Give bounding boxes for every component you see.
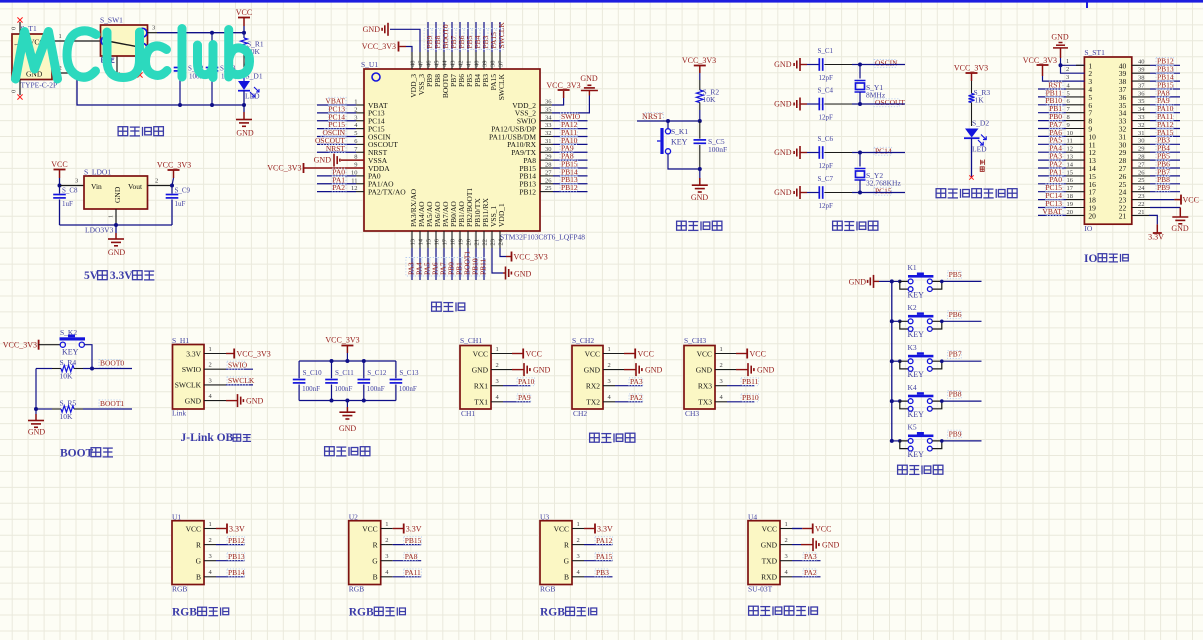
svg-text:STM32F103C8T6_LQFP48: STM32F103C8T6_LQFP48 [500, 233, 585, 242]
svg-text:PA12: PA12 [596, 536, 613, 545]
svg-text:10K: 10K [703, 95, 717, 104]
svg-text:2: 2 [1066, 66, 1069, 73]
svg-text:CH3: CH3 [685, 409, 699, 418]
svg-text:G: G [372, 557, 378, 566]
svg-text:GND: GND [645, 365, 663, 374]
svg-text:GND: GND [696, 365, 713, 374]
svg-text:1: 1 [109, 215, 115, 218]
svg-text:24: 24 [1138, 185, 1145, 192]
svg-text:RGB: RGB [540, 607, 565, 619]
svg-text:3: 3 [577, 553, 580, 560]
svg-text:B: B [564, 573, 569, 582]
svg-text:17: 17 [1067, 185, 1074, 192]
svg-text:K4: K4 [908, 383, 917, 392]
svg-text:19: 19 [1067, 201, 1074, 208]
svg-text:GND: GND [822, 540, 840, 549]
svg-text:39: 39 [1138, 67, 1145, 74]
svg-text:VCC_3V3: VCC_3V3 [362, 42, 396, 51]
svg-text:48: 48 [410, 61, 417, 68]
svg-text:3: 3 [1066, 74, 1069, 81]
svg-text:IO: IO [1084, 224, 1092, 233]
svg-text:VCC: VCC [51, 160, 67, 169]
svg-text:VCC: VCC [697, 349, 712, 358]
svg-text:VCC: VCC [638, 349, 654, 358]
svg-text:RGB: RGB [172, 585, 187, 594]
svg-text:VCC: VCC [554, 524, 569, 533]
svg-text:37: 37 [498, 60, 505, 67]
svg-text:PB14: PB14 [228, 568, 245, 577]
svg-text:29: 29 [1138, 146, 1145, 153]
svg-text:VCC_3V3: VCC_3V3 [546, 81, 580, 90]
svg-text:8: 8 [1067, 114, 1070, 121]
svg-text:PB11: PB11 [742, 377, 759, 386]
svg-text:PA2: PA2 [332, 183, 345, 192]
svg-text:PA9: PA9 [518, 393, 531, 402]
svg-text:TYPE-C-2P: TYPE-C-2P [21, 81, 58, 90]
svg-text:1K: 1K [975, 96, 985, 105]
svg-text:IO: IO [1084, 253, 1097, 265]
svg-text:S_CH2: S_CH2 [572, 336, 594, 345]
svg-text:23: 23 [1138, 193, 1145, 200]
svg-text:CH2: CH2 [573, 409, 587, 418]
svg-text:VCC_3V3: VCC_3V3 [267, 164, 301, 173]
svg-text:26: 26 [1138, 169, 1145, 176]
svg-text:PA11: PA11 [405, 568, 421, 577]
svg-text:GND: GND [472, 365, 489, 374]
svg-text:S_H1: S_H1 [172, 336, 189, 345]
svg-text:100nF: 100nF [302, 385, 320, 393]
svg-text:PA3: PA3 [804, 552, 817, 561]
svg-text:LED: LED [245, 92, 260, 101]
svg-text:PC15: PC15 [875, 187, 892, 196]
svg-text:16: 16 [1067, 177, 1074, 184]
svg-text:2: 2 [385, 537, 388, 544]
svg-text:21: 21 [1138, 209, 1145, 216]
svg-text:100nF: 100nF [335, 385, 353, 393]
svg-text:SWIO: SWIO [182, 365, 202, 374]
svg-text:3: 3 [720, 378, 723, 385]
svg-text:GND: GND [363, 25, 381, 34]
svg-text:VCC_3V3: VCC_3V3 [682, 56, 716, 65]
svg-text:VDD_1: VDD_1 [497, 203, 506, 227]
svg-text:S_C11: S_C11 [335, 369, 354, 377]
svg-text:3: 3 [785, 553, 788, 560]
svg-text:SWIO: SWIO [228, 360, 248, 369]
svg-text:OSCIN: OSCIN [875, 59, 898, 68]
svg-text:36: 36 [1138, 90, 1145, 97]
svg-text:8MHz: 8MHz [866, 91, 886, 100]
svg-text:1: 1 [385, 521, 388, 528]
svg-text:44: 44 [442, 60, 449, 67]
svg-text:K1: K1 [908, 263, 917, 272]
svg-text:PB5: PB5 [949, 270, 962, 279]
svg-text:KEY: KEY [908, 450, 925, 459]
svg-text:SWCLK: SWCLK [228, 376, 255, 385]
svg-text:1: 1 [209, 521, 212, 528]
svg-text:GND: GND [28, 428, 46, 437]
svg-text:21: 21 [1119, 211, 1127, 220]
svg-text:45: 45 [434, 61, 441, 68]
svg-text:R: R [196, 540, 201, 549]
svg-text:BOOT0: BOOT0 [100, 359, 124, 368]
svg-text:S_ST1: S_ST1 [1084, 48, 1105, 57]
svg-text:1: 1 [496, 346, 499, 353]
svg-text:G: G [196, 557, 202, 566]
svg-text:39: 39 [482, 61, 489, 68]
svg-text:28: 28 [1138, 154, 1145, 161]
svg-text:VCC: VCC [362, 524, 377, 533]
svg-text:32.768KHz: 32.768KHz [866, 179, 901, 188]
svg-text:1: 1 [59, 33, 62, 40]
svg-text:40: 40 [1138, 59, 1145, 66]
svg-text:S_LDO1: S_LDO1 [84, 168, 111, 177]
svg-text:33: 33 [1138, 114, 1145, 121]
svg-text:B: B [373, 573, 378, 582]
svg-text:42: 42 [458, 61, 465, 68]
svg-text:PB9: PB9 [1157, 183, 1170, 192]
svg-text:23: 23 [490, 239, 497, 246]
svg-text:S_K1: S_K1 [671, 127, 688, 136]
svg-text:VCC: VCC [1183, 196, 1199, 205]
svg-text:5: 5 [1067, 90, 1070, 97]
svg-text:S_C12: S_C12 [367, 369, 387, 377]
svg-text:S_C7: S_C7 [818, 175, 834, 183]
svg-text:3: 3 [209, 553, 212, 560]
svg-text:KEY: KEY [908, 290, 925, 299]
svg-text:37: 37 [1138, 82, 1145, 89]
svg-text:PB6: PB6 [949, 310, 962, 319]
svg-text:K3: K3 [908, 343, 917, 352]
svg-text:40: 40 [474, 61, 481, 68]
svg-text:GND: GND [774, 60, 792, 69]
svg-text:GND: GND [108, 248, 126, 257]
svg-text:2: 2 [608, 362, 611, 369]
svg-text:RXD: RXD [761, 573, 777, 582]
svg-text:14: 14 [418, 238, 425, 245]
svg-text:Vout: Vout [128, 182, 143, 191]
svg-text:PB12: PB12 [519, 187, 536, 196]
svg-text:S_U1: S_U1 [361, 60, 378, 69]
svg-text:43: 43 [450, 61, 457, 68]
svg-text:20: 20 [466, 239, 473, 246]
svg-text:38: 38 [490, 61, 497, 68]
svg-text:2: 2 [209, 362, 212, 369]
svg-text:GND: GND [774, 148, 792, 157]
svg-text:9: 9 [1067, 122, 1070, 129]
svg-text:11: 11 [1067, 138, 1073, 145]
svg-text:GND: GND [757, 365, 775, 374]
svg-text:5V: 5V [84, 270, 99, 282]
svg-text:10: 10 [1067, 130, 1074, 137]
svg-text:2: 2 [209, 537, 212, 544]
svg-text:BOOT: BOOT [60, 448, 94, 460]
svg-text:2: 2 [720, 362, 723, 369]
svg-text:17: 17 [442, 238, 449, 245]
svg-text:VCC: VCC [815, 524, 831, 533]
svg-text:G: G [564, 557, 570, 566]
svg-text:0: 0 [11, 27, 18, 30]
svg-text:16: 16 [434, 238, 441, 245]
svg-text:GND: GND [774, 188, 792, 197]
svg-text:100nF: 100nF [708, 145, 727, 154]
svg-text:RX3: RX3 [698, 382, 712, 391]
svg-text:SU-03T: SU-03T [748, 585, 773, 594]
svg-text:VCC_3V3: VCC_3V3 [954, 64, 988, 73]
svg-text:LDO3V3: LDO3V3 [85, 226, 114, 235]
svg-text:KEY: KEY [62, 348, 79, 357]
svg-text:GND: GND [246, 396, 264, 405]
svg-text:32: 32 [1138, 122, 1145, 129]
svg-text:41: 41 [466, 61, 473, 68]
svg-text:10K: 10K [60, 412, 74, 421]
svg-text:12pF: 12pF [819, 114, 834, 122]
svg-text:VCC_3V3: VCC_3V3 [237, 349, 271, 358]
svg-text:PA3: PA3 [630, 377, 643, 386]
svg-text:Vin: Vin [91, 182, 102, 191]
svg-text:K2: K2 [908, 303, 917, 312]
svg-text:TXD: TXD [762, 557, 778, 566]
svg-text:KEY: KEY [671, 138, 688, 147]
svg-text:NRST: NRST [642, 112, 663, 121]
svg-text:13: 13 [410, 239, 417, 246]
svg-text:15: 15 [426, 239, 433, 246]
svg-text:3.3V: 3.3V [597, 524, 613, 533]
svg-text:VCC: VCC [186, 524, 201, 533]
svg-text:PB11: PB11 [478, 258, 487, 275]
svg-text:S_D2: S_D2 [972, 119, 989, 128]
svg-text:3: 3 [152, 25, 155, 32]
svg-text:12pF: 12pF [819, 162, 834, 170]
svg-text:B: B [196, 573, 201, 582]
svg-text:SWCLK: SWCLK [497, 73, 506, 100]
svg-text:S_SW1: S_SW1 [100, 16, 123, 25]
svg-text:GND: GND [774, 100, 792, 109]
svg-text:LED: LED [972, 145, 987, 154]
svg-text:VCC: VCC [526, 349, 542, 358]
svg-text:22: 22 [1138, 201, 1145, 208]
svg-text:24: 24 [498, 238, 505, 245]
svg-text:J-Link OB: J-Link OB [181, 432, 234, 444]
svg-text:GND: GND [533, 365, 551, 374]
svg-text:VCC_3V3: VCC_3V3 [3, 341, 37, 350]
svg-text:12: 12 [1067, 146, 1074, 153]
svg-text:PA2/TX/AO: PA2/TX/AO [368, 187, 406, 196]
svg-text:S_C1: S_C1 [818, 47, 834, 55]
svg-text:31: 31 [1138, 130, 1145, 137]
svg-text:2: 2 [577, 537, 580, 544]
svg-text:PB7: PB7 [949, 350, 962, 359]
svg-text:K5: K5 [908, 423, 917, 432]
svg-text:GND: GND [185, 396, 202, 405]
svg-text:S_C9: S_C9 [175, 187, 191, 195]
svg-text:18: 18 [1067, 193, 1074, 200]
svg-text:1: 1 [720, 346, 723, 353]
svg-text:12pF: 12pF [819, 202, 834, 210]
svg-text:PA15: PA15 [596, 552, 613, 561]
svg-text:GND: GND [314, 156, 332, 165]
svg-text:PB12: PB12 [228, 536, 245, 545]
svg-text:GND: GND [339, 424, 357, 433]
svg-text:3.3V: 3.3V [229, 524, 245, 533]
svg-text:15: 15 [1067, 169, 1074, 176]
svg-text:CH1: CH1 [461, 409, 475, 418]
svg-text:3: 3 [75, 178, 78, 185]
svg-text:3: 3 [209, 377, 212, 384]
svg-text:3.3V: 3.3V [186, 349, 201, 358]
svg-text:PC14: PC14 [875, 147, 892, 156]
svg-text:GND: GND [580, 74, 598, 83]
svg-text:PB10: PB10 [742, 393, 759, 402]
svg-text:2: 2 [785, 537, 788, 544]
svg-text:21: 21 [474, 239, 481, 246]
svg-text:RX2: RX2 [586, 382, 600, 391]
svg-text:S_C6: S_C6 [818, 135, 834, 143]
svg-text:2: 2 [496, 362, 499, 369]
svg-text:GND: GND [236, 129, 254, 138]
svg-text:38: 38 [1138, 75, 1145, 82]
svg-text:PB3: PB3 [596, 568, 609, 577]
svg-text:TX1: TX1 [474, 398, 488, 407]
svg-text:1: 1 [785, 521, 788, 528]
svg-text:S_C8: S_C8 [62, 187, 78, 195]
svg-text:GND: GND [1051, 33, 1069, 42]
svg-text:RX1: RX1 [474, 382, 488, 391]
svg-text:19: 19 [458, 239, 465, 246]
svg-text:RGB: RGB [540, 585, 555, 594]
svg-text:30: 30 [1138, 138, 1145, 145]
svg-text:27: 27 [1138, 161, 1145, 168]
svg-text:VCC_3V3: VCC_3V3 [514, 253, 548, 262]
svg-text:PB9: PB9 [949, 429, 962, 438]
svg-text:3: 3 [385, 553, 388, 560]
svg-text:GND: GND [584, 365, 601, 374]
svg-text:14: 14 [1067, 161, 1074, 168]
svg-text:3: 3 [496, 378, 499, 385]
svg-text:VCC_3V3: VCC_3V3 [325, 336, 359, 345]
svg-text:Link: Link [172, 409, 186, 418]
svg-text:KEY: KEY [908, 330, 925, 339]
svg-text:SWCLK: SWCLK [497, 22, 506, 49]
svg-text:PA2: PA2 [630, 393, 643, 402]
svg-text:1uF: 1uF [62, 200, 73, 208]
svg-text:VCC: VCC [585, 349, 600, 358]
svg-text:35: 35 [1138, 98, 1145, 105]
svg-text:S_C10: S_C10 [303, 369, 323, 377]
svg-text:3.3V: 3.3V [110, 270, 133, 282]
svg-text:RGB: RGB [349, 607, 374, 619]
svg-text:12pF: 12pF [819, 74, 834, 82]
svg-text:RGB: RGB [172, 607, 197, 619]
svg-text:VCC: VCC [473, 349, 488, 358]
svg-text:PB13: PB13 [228, 552, 245, 561]
svg-text:GND: GND [113, 186, 122, 203]
svg-text:R: R [564, 540, 569, 549]
svg-text:VCC: VCC [750, 349, 766, 358]
svg-text:0: 0 [11, 90, 18, 93]
svg-text:GND: GND [691, 193, 709, 202]
svg-text:PB12: PB12 [561, 183, 578, 192]
svg-text:SWCLK: SWCLK [175, 381, 202, 390]
svg-text:1: 1 [1066, 58, 1069, 65]
svg-text:PA10: PA10 [518, 377, 535, 386]
svg-text:18: 18 [450, 239, 457, 246]
svg-text:S_CH3: S_CH3 [684, 336, 706, 345]
svg-text:1: 1 [577, 521, 580, 528]
svg-text:46: 46 [426, 60, 433, 67]
svg-text:VBAT: VBAT [1042, 207, 1062, 216]
svg-text:3: 3 [608, 378, 611, 385]
svg-text:47: 47 [418, 60, 425, 67]
svg-text:TX3: TX3 [698, 398, 712, 407]
svg-text:100nF: 100nF [367, 385, 385, 393]
svg-text:PB15: PB15 [405, 536, 422, 545]
svg-text:1uF: 1uF [175, 200, 186, 208]
svg-text:20: 20 [1067, 209, 1074, 216]
svg-text:GND: GND [761, 540, 778, 549]
svg-text:KEY: KEY [908, 370, 925, 379]
svg-text:TX2: TX2 [586, 398, 600, 407]
svg-text:VCC: VCC [236, 8, 252, 17]
svg-text:S_C13: S_C13 [399, 369, 419, 377]
svg-text:25: 25 [1138, 177, 1145, 184]
svg-text:3.3V: 3.3V [1148, 233, 1164, 242]
svg-text:22: 22 [482, 239, 489, 246]
svg-text:1: 1 [608, 346, 611, 353]
svg-text:S_C4: S_C4 [818, 87, 834, 95]
svg-text:PB8: PB8 [949, 390, 962, 399]
svg-text:13: 13 [1067, 154, 1074, 161]
svg-text:3.3V: 3.3V [406, 524, 422, 533]
svg-text:10K: 10K [60, 372, 74, 381]
svg-text:GND: GND [849, 277, 867, 286]
svg-text:GND: GND [1171, 224, 1189, 233]
svg-text:R: R [373, 540, 378, 549]
svg-text:2: 2 [155, 178, 158, 185]
svg-text:PA2: PA2 [804, 568, 817, 577]
svg-text:PA8: PA8 [405, 552, 418, 561]
svg-text:1: 1 [209, 346, 212, 353]
svg-text:RGB: RGB [349, 585, 364, 594]
svg-text:KEY: KEY [908, 410, 925, 419]
svg-text:34: 34 [1138, 106, 1145, 113]
svg-text:VCC_3V3: VCC_3V3 [1023, 56, 1057, 65]
svg-text:GND: GND [514, 270, 532, 279]
svg-text:100nF: 100nF [399, 385, 417, 393]
svg-text:20: 20 [1088, 211, 1096, 220]
svg-text:BOOT1: BOOT1 [100, 399, 124, 408]
svg-text:NRST: NRST [326, 144, 346, 153]
svg-text:VCC_3V3: VCC_3V3 [157, 161, 191, 170]
svg-text:S_CH1: S_CH1 [460, 336, 482, 345]
svg-text:VCC: VCC [762, 524, 777, 533]
